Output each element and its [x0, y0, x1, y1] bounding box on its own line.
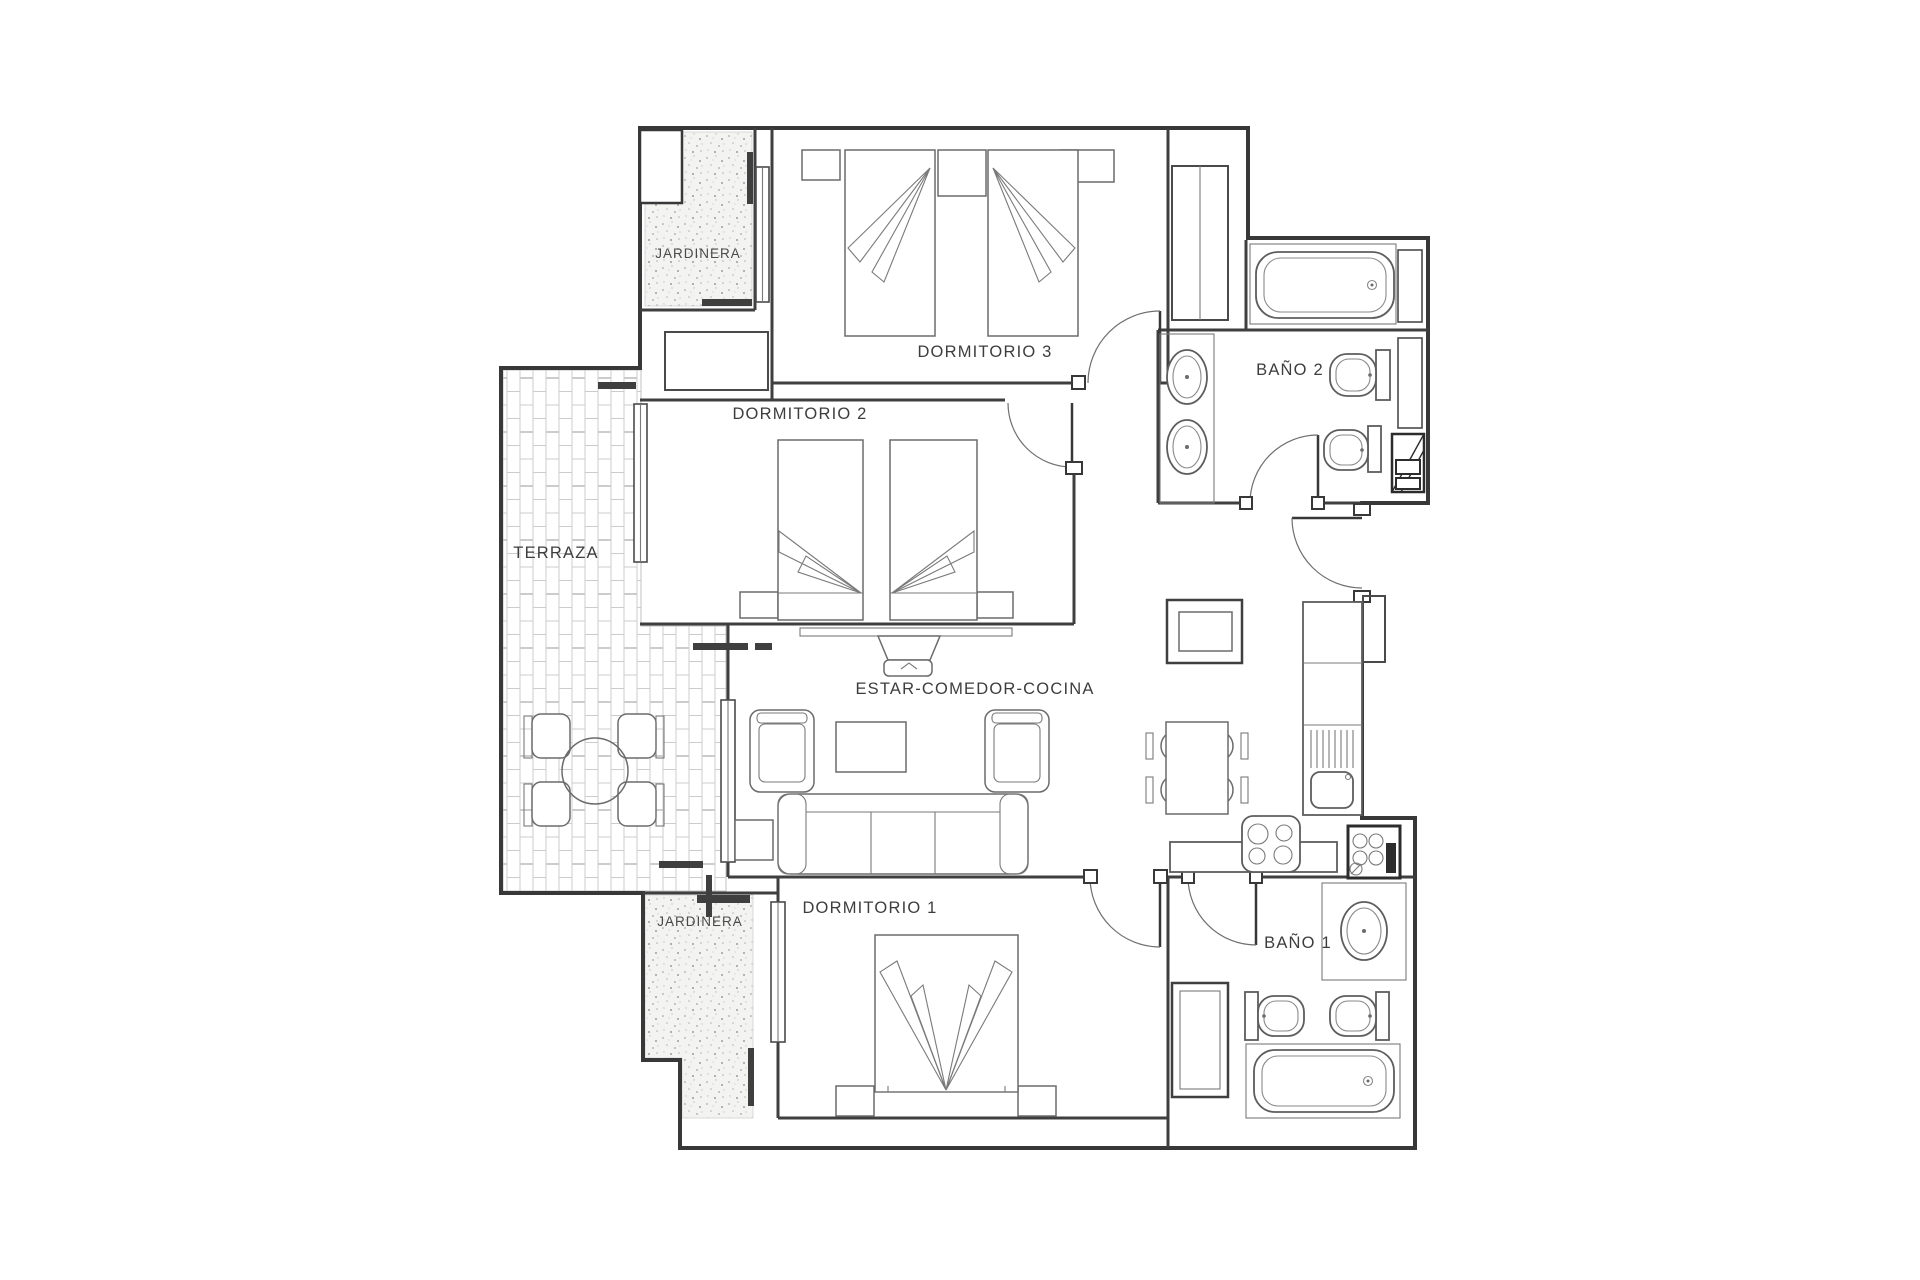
floor-plan-drawing: JARDINERA DORMITORIO 3 DORMITORIO 2 BAÑO… — [0, 0, 1920, 1280]
door-dormitorio1 — [1084, 870, 1167, 947]
vanity-sink — [1322, 883, 1406, 980]
room-label-dormitorio-1: DORMITORIO 1 — [802, 899, 937, 917]
hall-frame-element — [1167, 600, 1242, 663]
nightstand — [740, 592, 778, 618]
room-label-jardinera-top: JARDINERA — [655, 246, 741, 261]
sill-dorm1-west — [748, 1048, 754, 1106]
tv — [878, 636, 940, 676]
shower-closet — [1172, 983, 1228, 1097]
dining-table — [1166, 722, 1228, 814]
bathtub — [1250, 244, 1396, 324]
door-dormitorio2 — [1008, 403, 1082, 474]
window-living-terraza — [721, 700, 735, 862]
nightstand — [802, 150, 840, 180]
room-label-jardinera-bottom: JARDINERA — [657, 914, 743, 929]
room-label-dormitorio-2: DORMITORIO 2 — [732, 405, 867, 423]
room-label-bano-2: BAÑO 2 — [1256, 359, 1324, 379]
room-estar-comedor-cocina — [735, 600, 1400, 878]
side-table — [735, 820, 773, 860]
sill-dorm3-corner — [747, 152, 753, 204]
floor-plan-canvas: JARDINERA DORMITORIO 3 DORMITORIO 2 BAÑO… — [0, 0, 1920, 1280]
nightstand — [1018, 1086, 1056, 1116]
washing-machine — [1392, 434, 1424, 492]
room-label-terraza: TERRAZA — [513, 544, 598, 562]
bidet — [1330, 992, 1389, 1040]
bidet — [1324, 426, 1381, 472]
oven-unit — [1348, 826, 1400, 878]
sill-jardinera-top — [702, 299, 752, 306]
toilet — [1330, 350, 1390, 400]
facade-notch — [640, 130, 682, 203]
nightstand — [977, 592, 1013, 618]
toilet — [1245, 992, 1304, 1040]
sill-jardinera-bottom — [697, 895, 750, 903]
room-label-estar-comedor-cocina: ESTAR-COMEDOR-COCINA — [855, 680, 1094, 698]
window-bano2-shaft-upper — [1398, 250, 1422, 322]
double-bed — [875, 935, 1018, 1092]
dining-table-set — [1146, 722, 1248, 814]
room-bano-1 — [1172, 883, 1406, 1118]
nightstand — [836, 1086, 874, 1116]
sill-terraza-top — [598, 382, 636, 389]
twin-bed — [845, 150, 935, 336]
room-label-dormitorio-3: DORMITORIO 3 — [917, 343, 1052, 361]
sill-living-north — [693, 643, 748, 650]
window-dormitorio3-west — [756, 167, 769, 302]
wardrobe — [1172, 166, 1228, 320]
sill-terraza-south — [659, 861, 703, 868]
coffee-table — [836, 722, 906, 772]
room-label-bano-1: BAÑO 1 — [1264, 932, 1332, 952]
entry-niche — [1363, 596, 1385, 662]
sill-living-north-2 — [755, 643, 772, 650]
bathtub — [1246, 1044, 1400, 1118]
room-dormitorio-2 — [665, 332, 1013, 620]
door-bano1 — [1182, 871, 1262, 945]
armchair — [750, 710, 814, 792]
sofa — [778, 794, 1028, 874]
room-dormitorio-1 — [836, 935, 1056, 1116]
door-dormitorio3 — [1072, 311, 1160, 389]
door-bano2 — [1240, 435, 1324, 509]
nightstand — [938, 150, 986, 196]
armchair — [985, 710, 1049, 792]
closet — [665, 332, 768, 390]
window-dormitorio1-west — [771, 902, 785, 1042]
window-dormitorio2-terraza — [634, 404, 647, 562]
room-dormitorio-3 — [802, 150, 1228, 336]
twin-bed — [988, 150, 1078, 336]
tv-console — [800, 628, 1012, 636]
cooktop — [1242, 816, 1300, 872]
window-bano2-shaft-lower — [1398, 338, 1422, 428]
